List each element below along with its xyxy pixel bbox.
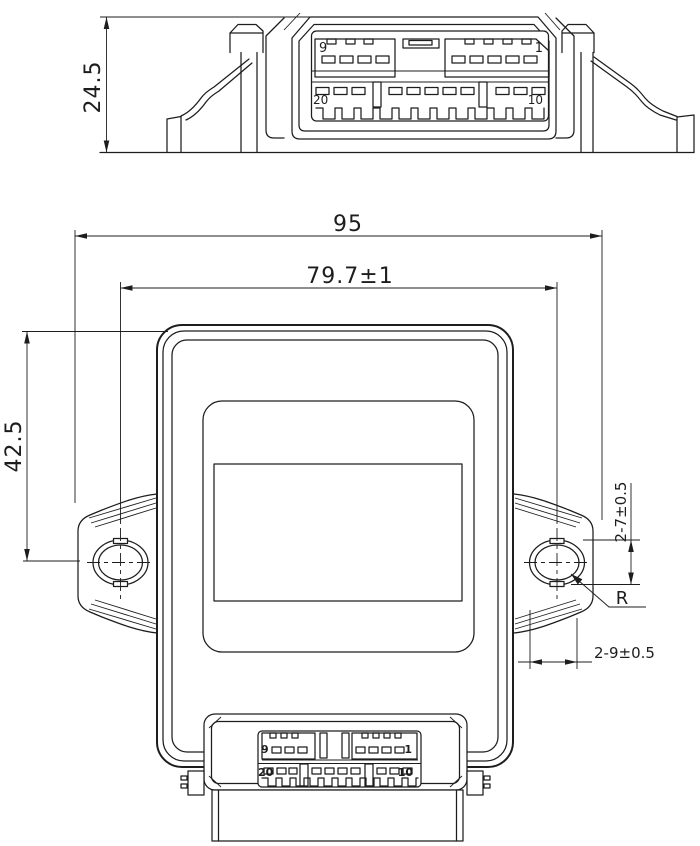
dim-hole-center-height-label: 42.5 <box>2 420 27 473</box>
top-view-pin-label-10: 10 <box>528 93 543 107</box>
base-block <box>212 790 463 841</box>
dim-radius-label: R <box>616 588 629 609</box>
dimension-hole-width-2-9: 2-9±0.5 <box>518 610 655 669</box>
top-view-left-profile <box>167 18 284 153</box>
label-recess <box>203 401 474 652</box>
left-clamp-tab <box>181 771 204 795</box>
bottom-connector-pin-1: 1 <box>404 743 412 756</box>
bottom-connector-pin-20: 20 <box>258 766 274 779</box>
dimension-radius-r: R <box>571 574 646 609</box>
top-view-right-profile <box>556 18 694 153</box>
bottom-connector-pin-9: 9 <box>261 743 269 756</box>
front-view: 9 1 20 10 95 <box>2 212 655 841</box>
top-view-pin-label-20: 20 <box>313 93 328 107</box>
dimension-overall-width-95: 95 <box>75 212 602 520</box>
dim-hole-spacing-label: 79.7±1 <box>306 264 393 289</box>
top-view-pin-label-1: 1 <box>535 41 543 56</box>
label-area <box>214 464 462 601</box>
dimension-hole-spacing-79-7: 79.7±1 <box>121 264 558 524</box>
top-view-pin-label-9: 9 <box>319 41 327 56</box>
dim-hole-height-label: 2-7±0.5 <box>612 482 630 543</box>
body-outline <box>157 325 513 767</box>
technical-drawing: 9 1 20 10 24.5 <box>0 0 700 846</box>
right-clamp-tab <box>467 771 490 795</box>
dim-height-label: 24.5 <box>81 61 106 114</box>
dim-hole-width-label: 2-9±0.5 <box>594 644 655 662</box>
top-view-connector-shroud <box>284 13 560 139</box>
dimension-hole-center-height-42-5: 42.5 <box>2 332 168 562</box>
bottom-connector-pin-10: 10 <box>398 766 414 779</box>
dim-overall-width-label: 95 <box>333 212 363 237</box>
dimension-height-24-5: 24.5 <box>81 17 312 153</box>
top-view: 9 1 20 10 24.5 <box>81 13 694 153</box>
bottom-connector: 9 1 20 10 <box>204 714 467 790</box>
drawing-canvas: 9 1 20 10 24.5 <box>0 0 700 846</box>
